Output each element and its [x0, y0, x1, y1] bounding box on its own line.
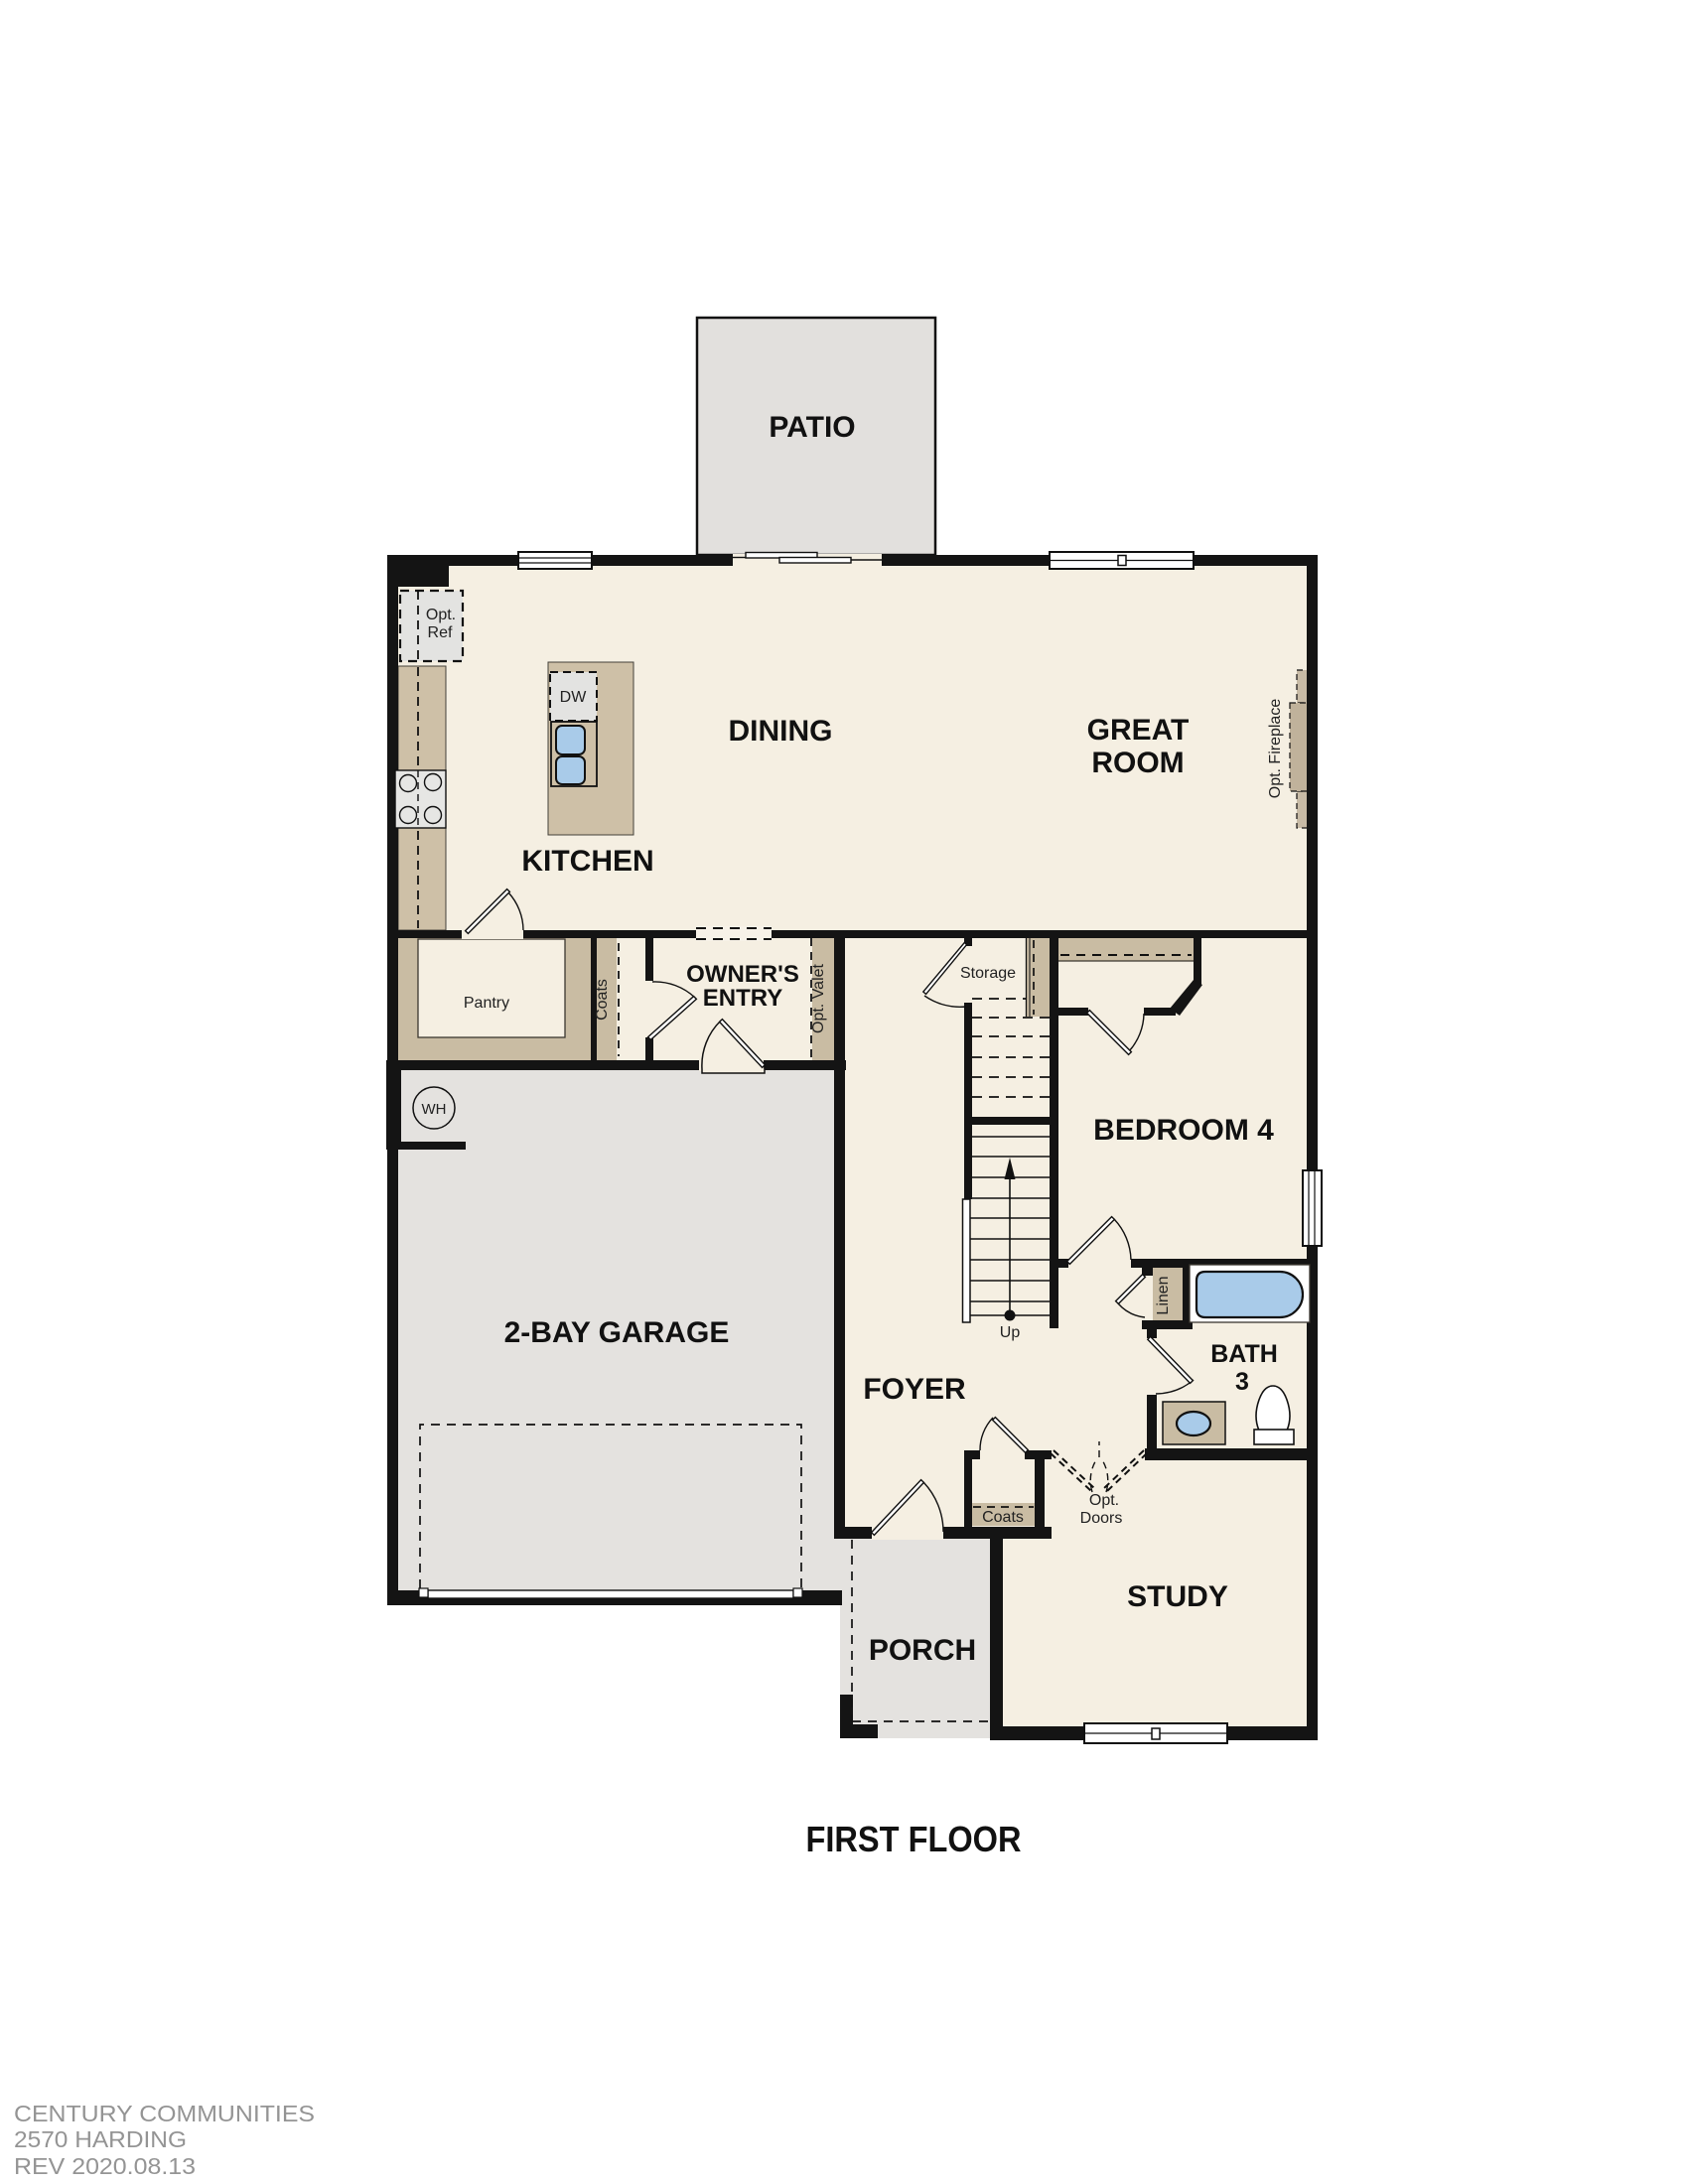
svg-text:Opt.: Opt.: [426, 607, 456, 623]
svg-text:REV 2020.08.13: REV 2020.08.13: [14, 2153, 196, 2179]
svg-text:2570 HARDING: 2570 HARDING: [14, 2126, 187, 2152]
svg-text:FOYER: FOYER: [863, 1373, 966, 1406]
svg-text:ROOM: ROOM: [1091, 747, 1184, 779]
svg-text:WH: WH: [422, 1101, 447, 1118]
svg-text:BEDROOM 4: BEDROOM 4: [1093, 1114, 1274, 1147]
svg-text:PORCH: PORCH: [869, 1634, 976, 1667]
svg-text:BATH: BATH: [1210, 1340, 1278, 1368]
svg-text:KITCHEN: KITCHEN: [521, 845, 653, 878]
svg-text:Linen: Linen: [1155, 1276, 1172, 1314]
svg-text:Opt. Valet: Opt. Valet: [810, 963, 827, 1033]
svg-text:ENTRY: ENTRY: [703, 985, 782, 1012]
svg-text:Coats: Coats: [982, 1509, 1024, 1526]
svg-text:STUDY: STUDY: [1127, 1580, 1228, 1613]
svg-text:2-BAY GARAGE: 2-BAY GARAGE: [504, 1316, 730, 1349]
svg-text:Coats: Coats: [594, 979, 611, 1021]
svg-text:DW: DW: [560, 689, 588, 706]
svg-text:Ref: Ref: [428, 624, 453, 641]
svg-text:Pantry: Pantry: [464, 995, 509, 1012]
svg-text:CENTURY COMMUNITIES: CENTURY COMMUNITIES: [14, 2101, 315, 2126]
svg-text:Opt. Fireplace: Opt. Fireplace: [1267, 699, 1284, 799]
svg-text:Opt.: Opt.: [1089, 1492, 1119, 1509]
svg-text:OWNER'S: OWNER'S: [686, 961, 799, 988]
svg-text:Doors: Doors: [1080, 1510, 1123, 1527]
svg-text:GREAT: GREAT: [1087, 714, 1190, 747]
svg-text:Up: Up: [1000, 1324, 1021, 1341]
svg-text:Storage: Storage: [960, 965, 1016, 982]
svg-text:PATIO: PATIO: [769, 411, 855, 444]
svg-text:3: 3: [1235, 1368, 1249, 1396]
svg-text:FIRST FLOOR: FIRST FLOOR: [806, 1819, 1022, 1859]
svg-text:DINING: DINING: [729, 715, 833, 748]
